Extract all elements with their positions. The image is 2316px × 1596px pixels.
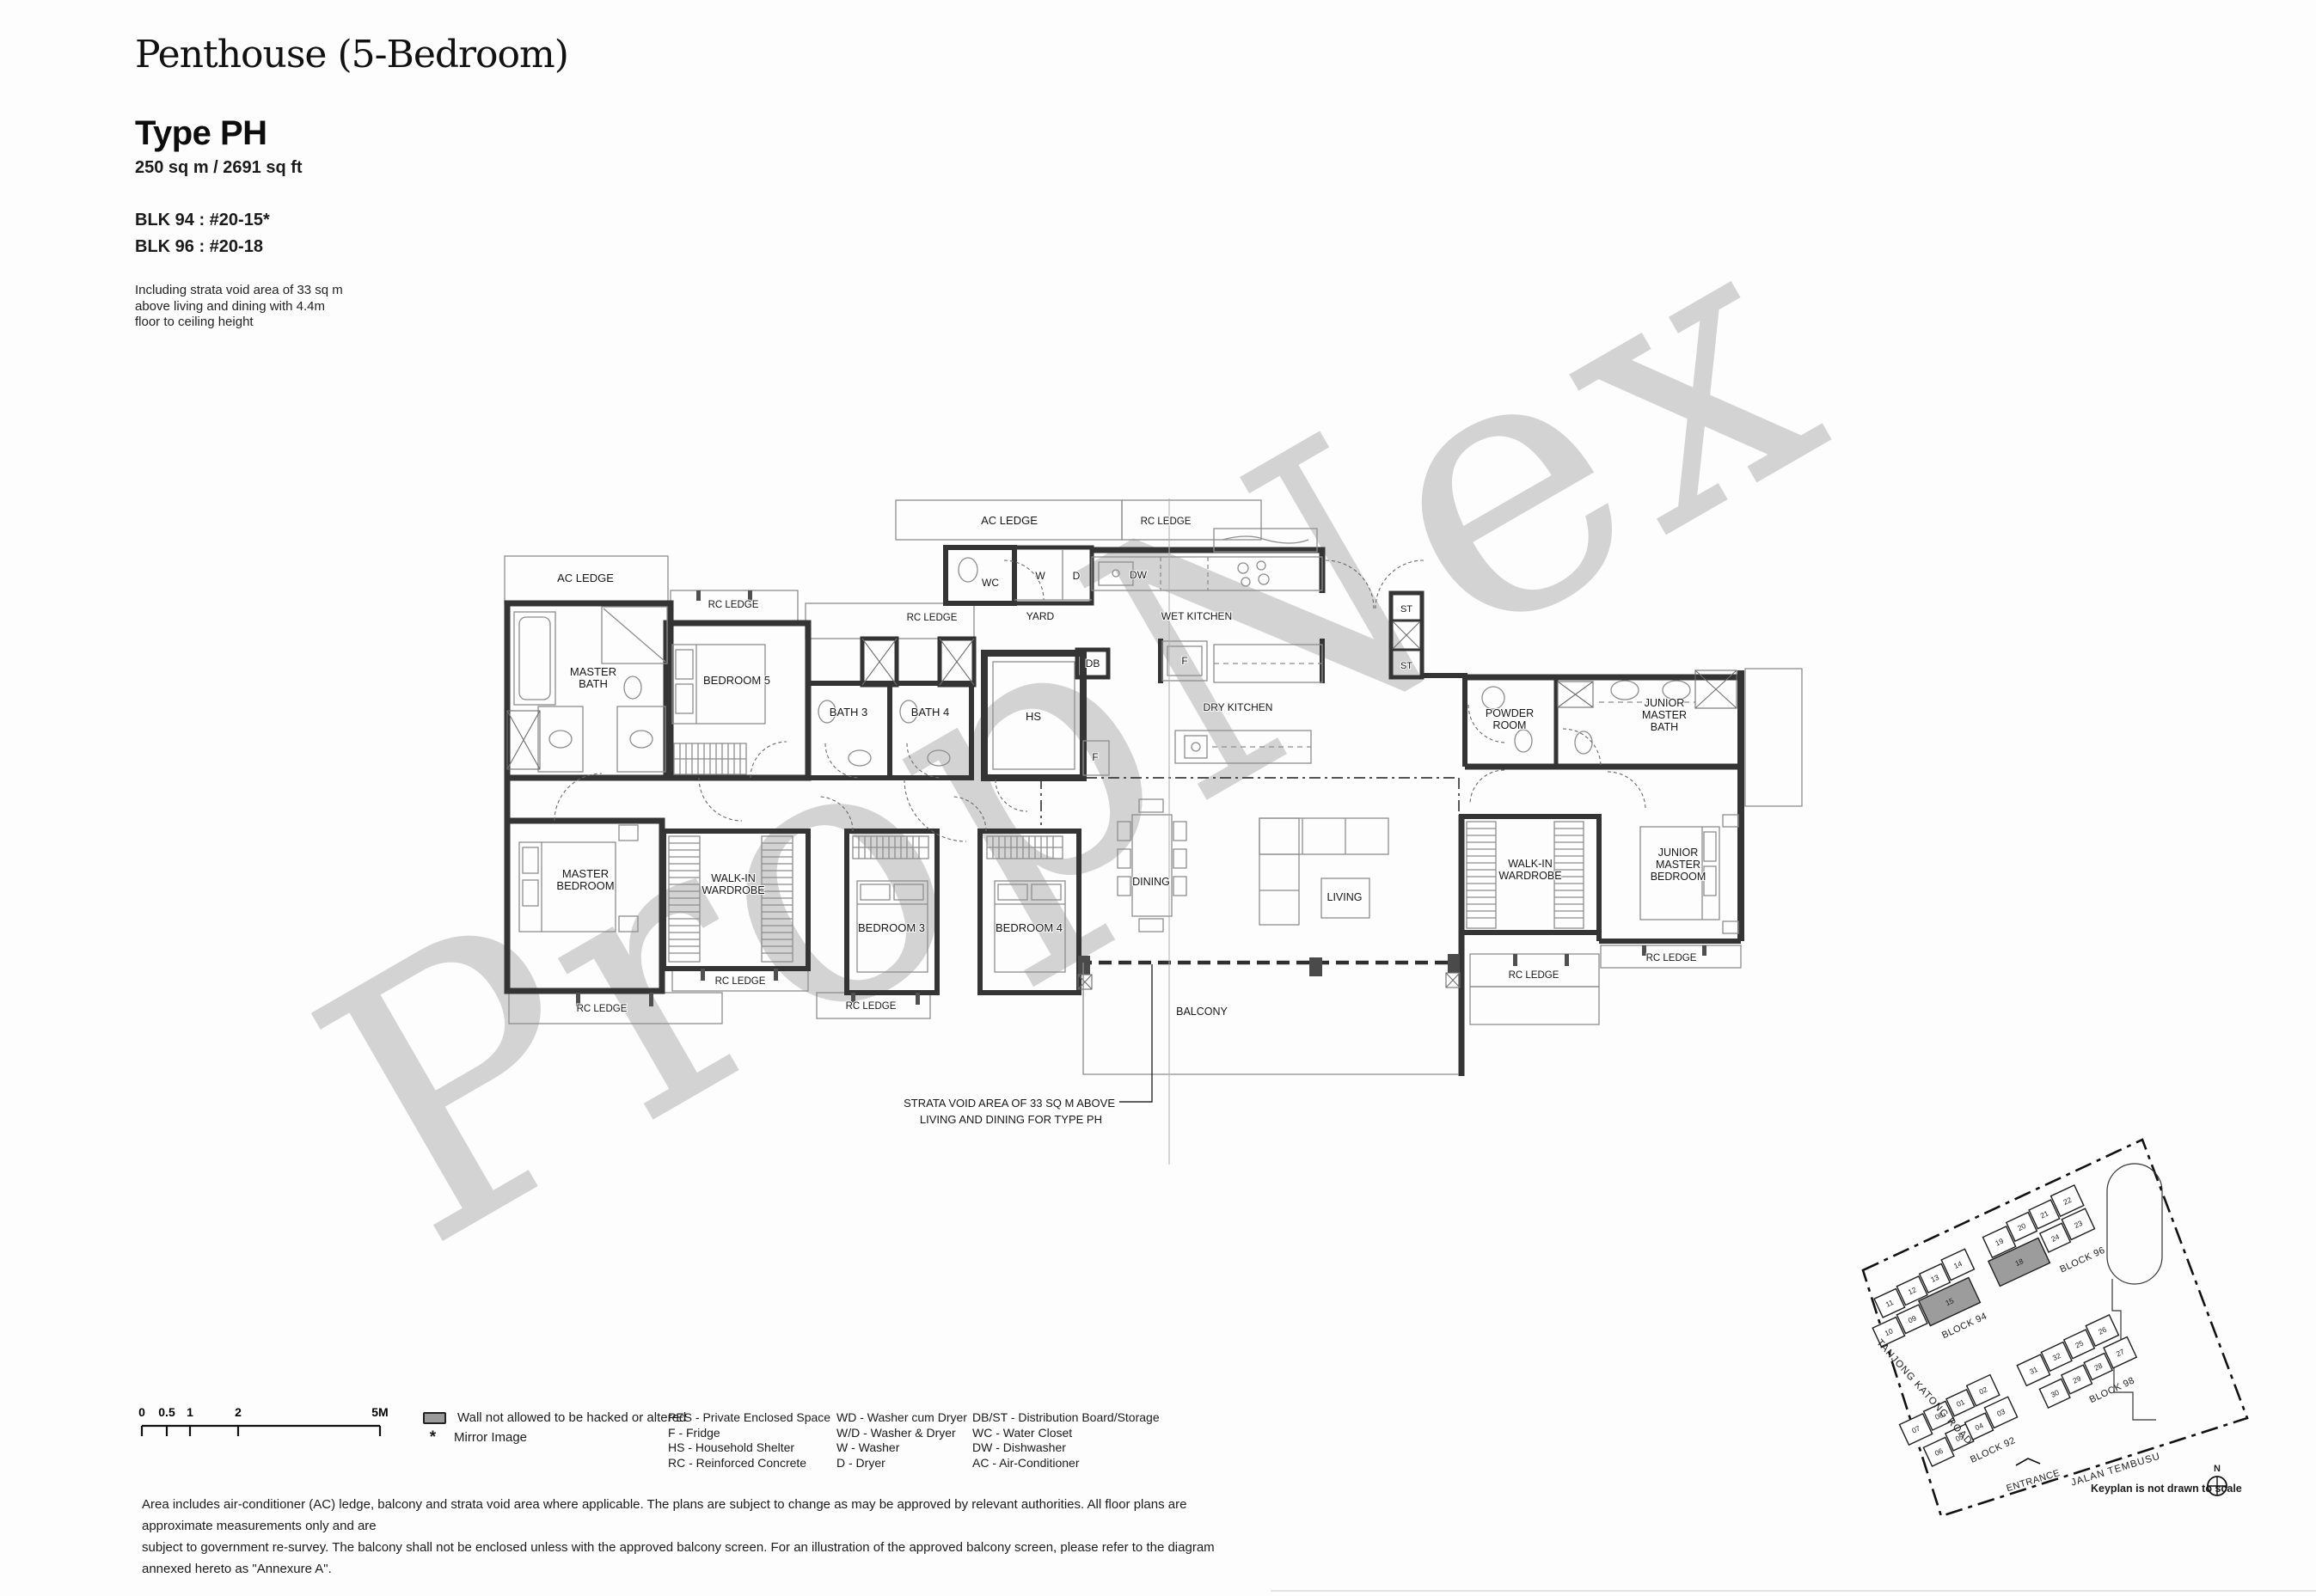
room-label: BALCONY <box>1176 1006 1228 1018</box>
room-label: DRY KITCHEN <box>1204 701 1273 713</box>
abbrev-item: D - Dryer <box>836 1456 972 1471</box>
strata-note: Including strata void area of 33 sq m ab… <box>135 283 348 331</box>
room-label: DW <box>1130 569 1148 581</box>
room-label: BATH 4 <box>911 706 950 719</box>
room-label: AC LEDGE <box>981 514 1038 527</box>
room-label: JUNIORMASTERBEDROOM <box>1651 847 1706 883</box>
header: Penthouse (5-Bedroom) Type PH 250 sq m /… <box>135 33 616 331</box>
room-label: YARD <box>1026 610 1055 622</box>
room-label: F <box>1181 655 1187 667</box>
room-label: JUNIORMASTERBATH <box>1642 697 1687 733</box>
room-label: W <box>1035 570 1045 582</box>
abbrev-column-2: WD - Washer cum DryerW/D - Washer & Drye… <box>836 1410 972 1471</box>
room-label: POWDERROOM <box>1486 707 1534 731</box>
walls <box>507 547 1743 1076</box>
floor-plan: AC LEDGERC LEDGEMASTERBATHBEDROOM 5BATH … <box>481 481 1823 1169</box>
room-label: WC <box>982 577 999 589</box>
page-title: Penthouse (5-Bedroom) <box>135 33 616 76</box>
abbrev-item: PES - Private Enclosed Space <box>668 1410 836 1426</box>
keyplan-block-label: BLOCK 96 <box>2058 1245 2106 1275</box>
abbrev-item: DW - Dishwasher <box>972 1440 1160 1456</box>
room-label: BEDROOM 3 <box>858 921 925 934</box>
scale-tick-label: 1 <box>187 1405 193 1419</box>
keyplan-block-label: BLOCK 98 <box>2088 1375 2136 1405</box>
mirror-asterisk-icon: * <box>423 1434 443 1442</box>
disclaimer: Area includes air-conditioner (AC) ledge… <box>142 1494 1225 1580</box>
scale-tick-label: 0.5 <box>158 1405 175 1419</box>
room-label: AC LEDGE <box>557 572 614 584</box>
balcony-outline <box>1083 963 1459 1074</box>
disclaimer-line: Area includes air-conditioner (AC) ledge… <box>142 1494 1225 1537</box>
scale-tick-label: 5M <box>371 1405 388 1419</box>
room-label: RC LEDGE <box>1141 517 1192 527</box>
room-label: WET KITCHEN <box>1161 610 1232 622</box>
abbrev-item: HS - Household Shelter <box>668 1440 836 1456</box>
abbrev-item: W - Washer <box>836 1440 972 1456</box>
room-label: RC LEDGE <box>708 600 759 610</box>
abbrev-item: AC - Air-Conditioner <box>972 1456 1160 1471</box>
room-label: RC LEDGE <box>1509 970 1559 981</box>
abbrev-item: WD - Washer cum Dryer <box>836 1410 972 1426</box>
room-label: LIVING <box>1327 891 1363 903</box>
unit-blk-94: BLK 94 : #20-15* <box>135 207 616 234</box>
room-label: RC LEDGE <box>846 1001 897 1012</box>
room-label: MASTERBEDROOM <box>556 867 614 892</box>
abbrev-item: RC - Reinforced Concrete <box>668 1456 836 1471</box>
abbrev-column-1: PES - Private Enclosed SpaceF - FridgeHS… <box>668 1410 836 1471</box>
wall-legend-icon <box>423 1412 446 1424</box>
scale-tick-label: 2 <box>235 1405 242 1419</box>
abbreviation-legend: PES - Private Enclosed SpaceF - FridgeHS… <box>668 1410 1160 1471</box>
mirror-legend-label: Mirror Image <box>454 1430 527 1445</box>
room-label: STRATA VOID AREA OF 33 SQ M ABOVE <box>904 1097 1115 1110</box>
room-label: WALK-INWARDROBE <box>1498 858 1561 882</box>
keyplan-block-label: BLOCK 92 <box>1969 1435 2017 1465</box>
room-label: D <box>1073 570 1081 582</box>
symbol-legend: Wall not allowed to be hacked or altered… <box>423 1408 686 1447</box>
room-label: MASTERBATH <box>570 665 616 690</box>
keyplan-note: Keyplan is not drawn to scale <box>2091 1483 2242 1495</box>
room-label: ST <box>1400 604 1412 615</box>
room-label: DB <box>1086 657 1100 670</box>
room-label: F <box>1092 751 1098 763</box>
strata-void-boundary <box>1041 778 1459 963</box>
disclaimer-line: subject to government re-survey. The bal… <box>142 1537 1225 1580</box>
keyplan-block: 19202122182423BLOCK 96 <box>1975 1185 2107 1301</box>
room-label: ST <box>1400 661 1412 671</box>
room-label: BATH 3 <box>830 706 868 719</box>
room-label: RC LEDGE <box>1646 953 1697 963</box>
strata-leader-line <box>1119 964 1152 1102</box>
abbrev-item: WC - Water Closet <box>972 1426 1160 1441</box>
abbrev-item: DB/ST - Distribution Board/Storage <box>972 1410 1160 1426</box>
scale-tick-label: 0 <box>138 1405 145 1419</box>
wall-legend-label: Wall not allowed to be hacked or altered <box>457 1410 686 1425</box>
type-label: Type PH <box>135 114 616 153</box>
room-label: DINING <box>1132 876 1170 888</box>
room-label: RC LEDGE <box>577 1004 628 1014</box>
room-label: BEDROOM 5 <box>703 674 770 687</box>
unit-list: BLK 94 : #20-15* BLK 96 : #20-18 <box>135 207 616 260</box>
page-bottom-rule <box>1271 1590 2316 1592</box>
abbrev-column-3: DB/ST - Distribution Board/StorageWC - W… <box>972 1410 1160 1471</box>
room-label: HS <box>1026 710 1041 723</box>
keyplan: 11121314100915BLOCK 9419202122182423BLOC… <box>1840 1134 2316 1538</box>
room-label: WALK-INWARDROBE <box>702 872 764 896</box>
keyplan-block: 3132252630292827BLOCK 98 <box>2014 1312 2148 1428</box>
svg-text:N: N <box>2214 1464 2221 1474</box>
abbrev-item: F - Fridge <box>668 1426 836 1441</box>
unit-blk-96: BLK 96 : #20-18 <box>135 234 616 260</box>
area-text: 250 sq m / 2691 sq ft <box>135 158 616 178</box>
entrance-chevron <box>2016 1458 2040 1465</box>
abbrev-item: W/D - Washer & Dryer <box>836 1426 972 1441</box>
plan-labels: AC LEDGERC LEDGEMASTERBATHBEDROOM 5BATH … <box>556 514 1706 1126</box>
room-label: BEDROOM 4 <box>996 921 1063 934</box>
room-label: RC LEDGE <box>715 976 766 987</box>
scale-bar: 00.5125M <box>133 1399 417 1442</box>
room-label: RC LEDGE <box>907 613 958 623</box>
room-label: LIVING AND DINING FOR TYPE PH <box>920 1113 1102 1126</box>
floorplan-page: PropNex Penthouse (5-Bedroom) Type PH 25… <box>0 0 2316 1596</box>
